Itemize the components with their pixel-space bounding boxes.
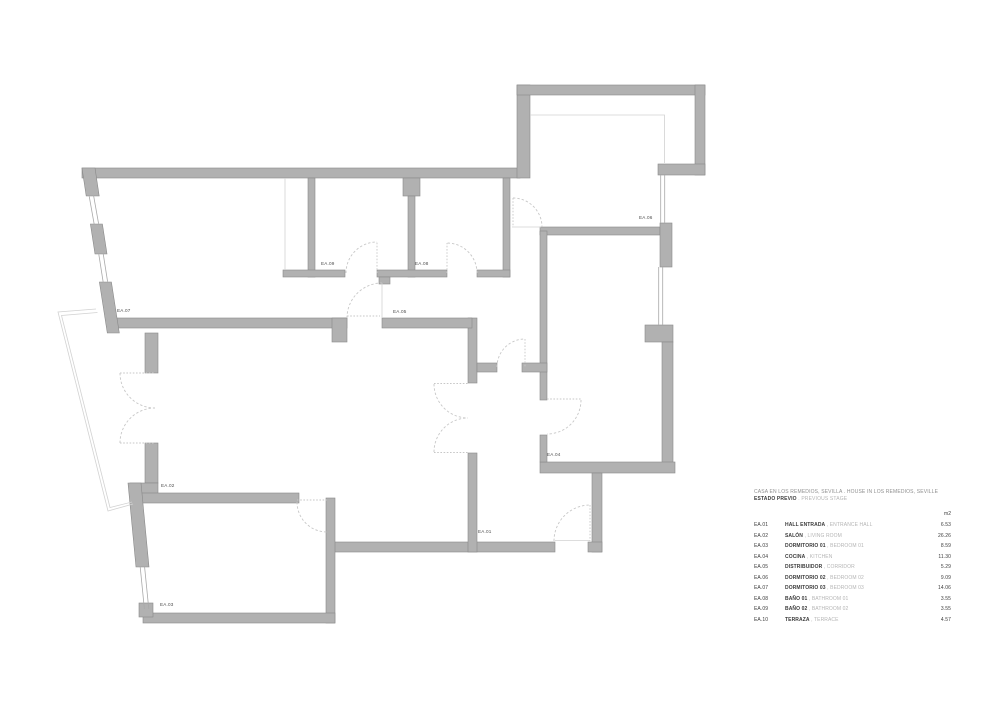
wall-ea06-bottom-right — [658, 164, 705, 175]
wall-corridor-left — [109, 318, 347, 328]
room-area: 5.29 — [925, 562, 951, 573]
room-name: DORMITORIO 01 , BEDROOM 01 — [785, 541, 925, 552]
subtitle-en: . PREVIOUS STAGE — [797, 496, 848, 502]
room-name-es: BAÑO 02 — [785, 606, 807, 612]
wall-corridor-right — [382, 318, 472, 328]
room-code: EA.04 — [754, 552, 785, 563]
legend-row: EA.09 BAÑO 02 , BATHROOM 02 3.55 — [754, 604, 951, 615]
wall-salon-left-upper — [145, 333, 158, 373]
legend-row: EA.03 DORMITORIO 01 , BEDROOM 01 8.59 — [754, 541, 951, 552]
room-name-es: HALL ENTRADA — [785, 522, 825, 528]
door-arc-corridor — [347, 283, 382, 318]
terrace-outer-line — [58, 309, 133, 511]
room-label-ea06: EA.06 — [639, 216, 653, 221]
room-label-ea04: EA.04 — [547, 453, 561, 458]
terrace-inner-line — [62, 313, 133, 508]
room-code: EA.10 — [754, 615, 785, 626]
room-name-en: BATHROOM 01 — [812, 596, 849, 602]
legend-row: EA.01 HALL ENTRADA , ENTRANCE HALL 6.53 — [754, 520, 951, 531]
wall-kitchen-right — [662, 342, 673, 467]
wall-ea03-right — [326, 498, 335, 623]
legend-row: EA.04 COCINA , KITCHEN 11.30 — [754, 552, 951, 563]
wall-kitchen-right-block2 — [645, 325, 673, 342]
room-code: EA.08 — [754, 594, 785, 605]
wall-salon-left-lower — [145, 443, 158, 483]
room-name-es: DORMITORIO 02 — [785, 575, 826, 581]
room-name-en: TERRACE — [814, 617, 839, 623]
wall-ea06-right — [695, 85, 705, 175]
room-code: EA.07 — [754, 583, 785, 594]
wall-kitchen-right-block1 — [660, 223, 672, 267]
room-name: HALL ENTRADA , ENTRANCE HALL — [785, 520, 925, 531]
room-name-es: DISTRIBUIDOR — [785, 564, 822, 570]
wall-ea03-corner — [139, 603, 153, 617]
legend-row: EA.07 DORMITORIO 03 , BEDROOM 03 14.06 — [754, 583, 951, 594]
room-area: 9.09 — [925, 573, 951, 584]
wall-hall-corridor-a — [477, 363, 497, 372]
ea06-inner-outline — [530, 115, 665, 163]
wall-bath-bottom-a — [283, 270, 345, 277]
room-area: 26.26 — [925, 531, 951, 542]
room-name-en: LIVING ROOM — [807, 533, 841, 539]
subtitle-es: ESTADO PREVIO — [754, 496, 797, 502]
door-arc-kitchen — [547, 400, 581, 434]
door-arc-terrace-lower — [120, 408, 155, 443]
wall-bath-divider — [408, 196, 415, 277]
room-label-ea08: EA.08 — [415, 262, 429, 267]
room-code: EA.02 — [754, 531, 785, 542]
wall-top — [82, 168, 520, 178]
room-name-en: BEDROOM 01 — [830, 543, 864, 549]
room-code: EA.03 — [754, 541, 785, 552]
wall-kitchen-bottom — [540, 462, 675, 473]
sheet-subtitle: ESTADO PREVIO . PREVIOUS STAGE — [754, 496, 951, 503]
doors — [120, 198, 590, 541]
wall-ea09-left — [308, 178, 315, 277]
door-arc-salon-lower — [434, 418, 468, 452]
room-area: 6.53 — [925, 520, 951, 531]
room-name: COCINA , KITCHEN — [785, 552, 925, 563]
room-area: 11.30 — [925, 552, 951, 563]
wall-kitchen-top — [540, 227, 660, 235]
room-area: 8.59 — [925, 541, 951, 552]
room-label-ea02: EA.02 — [161, 484, 175, 489]
wall-hall-corridor-b — [522, 363, 547, 372]
legend-row: EA.08 BAÑO 01 , BATHROOM 01 3.55 — [754, 594, 951, 605]
wall-divider-lower — [468, 453, 477, 552]
room-label-ea05: EA.05 — [393, 310, 407, 315]
wall-ea06-left — [517, 85, 530, 178]
room-name-en: BATHROOM 02 — [812, 606, 849, 612]
door-arc-ea09 — [346, 242, 377, 273]
wall-kitchen-left-upper — [540, 231, 547, 400]
room-code: EA.01 — [754, 520, 785, 531]
room-code: EA.06 — [754, 573, 785, 584]
door-arc-terrace-upper — [120, 373, 155, 408]
room-name: BAÑO 02 , BATHROOM 02 — [785, 604, 925, 615]
wall-ea03-bottom — [143, 613, 335, 623]
room-name-en: BEDROOM 03 — [830, 585, 864, 591]
room-name-es: DORMITORIO 01 — [785, 543, 826, 549]
wall-facade-seg1 — [90, 224, 107, 254]
wall-hall-right — [592, 473, 602, 552]
wall-bath-divider-head — [403, 178, 420, 196]
title-block: CASA EN LOS REMEDIOS, SEVILLA . HOUSE IN… — [754, 489, 951, 625]
wall-salon-bottom — [333, 542, 555, 552]
room-name-en: KITCHEN — [810, 554, 833, 560]
legend-row: EA.05 DISTRIBUIDOR , CORRIDOR 5.29 — [754, 562, 951, 573]
room-name-en: ENTRANCE HALL — [830, 522, 873, 528]
legend-row: EA.02 SALÓN , LIVING ROOM 26.26 — [754, 531, 951, 542]
legend-row: EA.10 TERRAZA , TERRACE 4.57 — [754, 615, 951, 626]
door-arc-ea03 — [297, 502, 327, 532]
room-area: 4.57 — [925, 615, 951, 626]
door-arc-ea06 — [513, 198, 542, 227]
room-label-ea03: EA.03 — [160, 603, 174, 608]
door-arc-ea08 — [447, 243, 477, 273]
room-name-es: SALÓN — [785, 533, 803, 539]
window-kitchen-right — [659, 267, 663, 325]
door-arc-entrance — [554, 505, 590, 541]
wall-corridor-jamb — [332, 318, 347, 342]
wall-bath-bottom-c — [477, 270, 510, 277]
wall-ea06-top — [517, 85, 705, 95]
area-unit-header: m2 — [754, 511, 951, 517]
room-name-es: BAÑO 01 — [785, 596, 807, 602]
floor-plan-sheet: EA.07 EA.09 EA.08 EA.05 EA.06 EA.04 EA.0… — [0, 0, 1000, 707]
wall-ea03-top — [133, 493, 299, 503]
room-name-es: COCINA — [785, 554, 805, 560]
room-name: BAÑO 01 , BATHROOM 01 — [785, 594, 925, 605]
room-name-es: DORMITORIO 03 — [785, 585, 826, 591]
wall-hall-bottom-corner — [588, 542, 602, 552]
room-name: SALÓN , LIVING ROOM — [785, 531, 925, 542]
room-label-ea01: EA.01 — [478, 530, 492, 535]
wall-ea08-right — [503, 178, 510, 277]
room-code: EA.05 — [754, 562, 785, 573]
room-name: DORMITORIO 02 , BEDROOM 02 — [785, 573, 925, 584]
room-area: 3.55 — [925, 594, 951, 605]
room-name: DORMITORIO 03 , BEDROOM 03 — [785, 583, 925, 594]
window-ea07-lower — [99, 254, 108, 283]
room-area: 14.06 — [925, 583, 951, 594]
room-name-en: BEDROOM 02 — [830, 575, 864, 581]
room-area: 3.55 — [925, 604, 951, 615]
terrace-outline — [58, 309, 133, 511]
wall-bath-bottom-b — [377, 270, 447, 277]
door-arc-salon-upper — [434, 384, 468, 418]
room-name-en: CORRIDOR — [827, 564, 855, 570]
room-name-es: TERRAZA — [785, 617, 810, 623]
walls — [82, 85, 705, 623]
legend-row: EA.06 DORMITORIO 02 , BEDROOM 02 9.09 — [754, 573, 951, 584]
window-ea06-right — [661, 175, 665, 223]
room-name: DISTRIBUIDOR , CORRIDOR — [785, 562, 925, 573]
room-code: EA.09 — [754, 604, 785, 615]
wall-kitchen-left-lower — [540, 435, 547, 462]
door-arc-hall-corridor — [497, 339, 525, 367]
window-ea07-upper — [89, 196, 98, 225]
room-name: TERRAZA , TERRACE — [785, 615, 925, 626]
room-label-ea09: EA.09 — [321, 262, 335, 267]
room-label-ea07: EA.07 — [117, 309, 131, 314]
